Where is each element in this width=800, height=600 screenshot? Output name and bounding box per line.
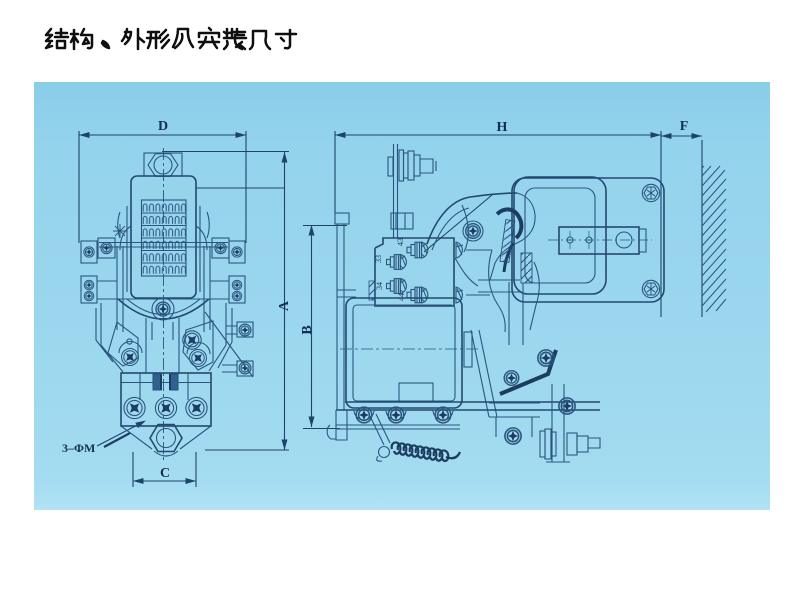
svg-text:C: C — [160, 466, 170, 481]
svg-text:34: 34 — [375, 282, 384, 290]
svg-text:H: H — [497, 120, 508, 135]
svg-text:B: B — [300, 325, 315, 334]
svg-text:3–ΦM: 3–ΦM — [62, 441, 95, 455]
svg-text:A: A — [277, 300, 292, 311]
svg-text:33: 33 — [374, 255, 383, 263]
svg-text:44: 44 — [397, 293, 406, 301]
svg-text:43: 43 — [396, 238, 405, 246]
svg-text:D: D — [158, 119, 168, 134]
svg-text:F: F — [680, 119, 689, 134]
